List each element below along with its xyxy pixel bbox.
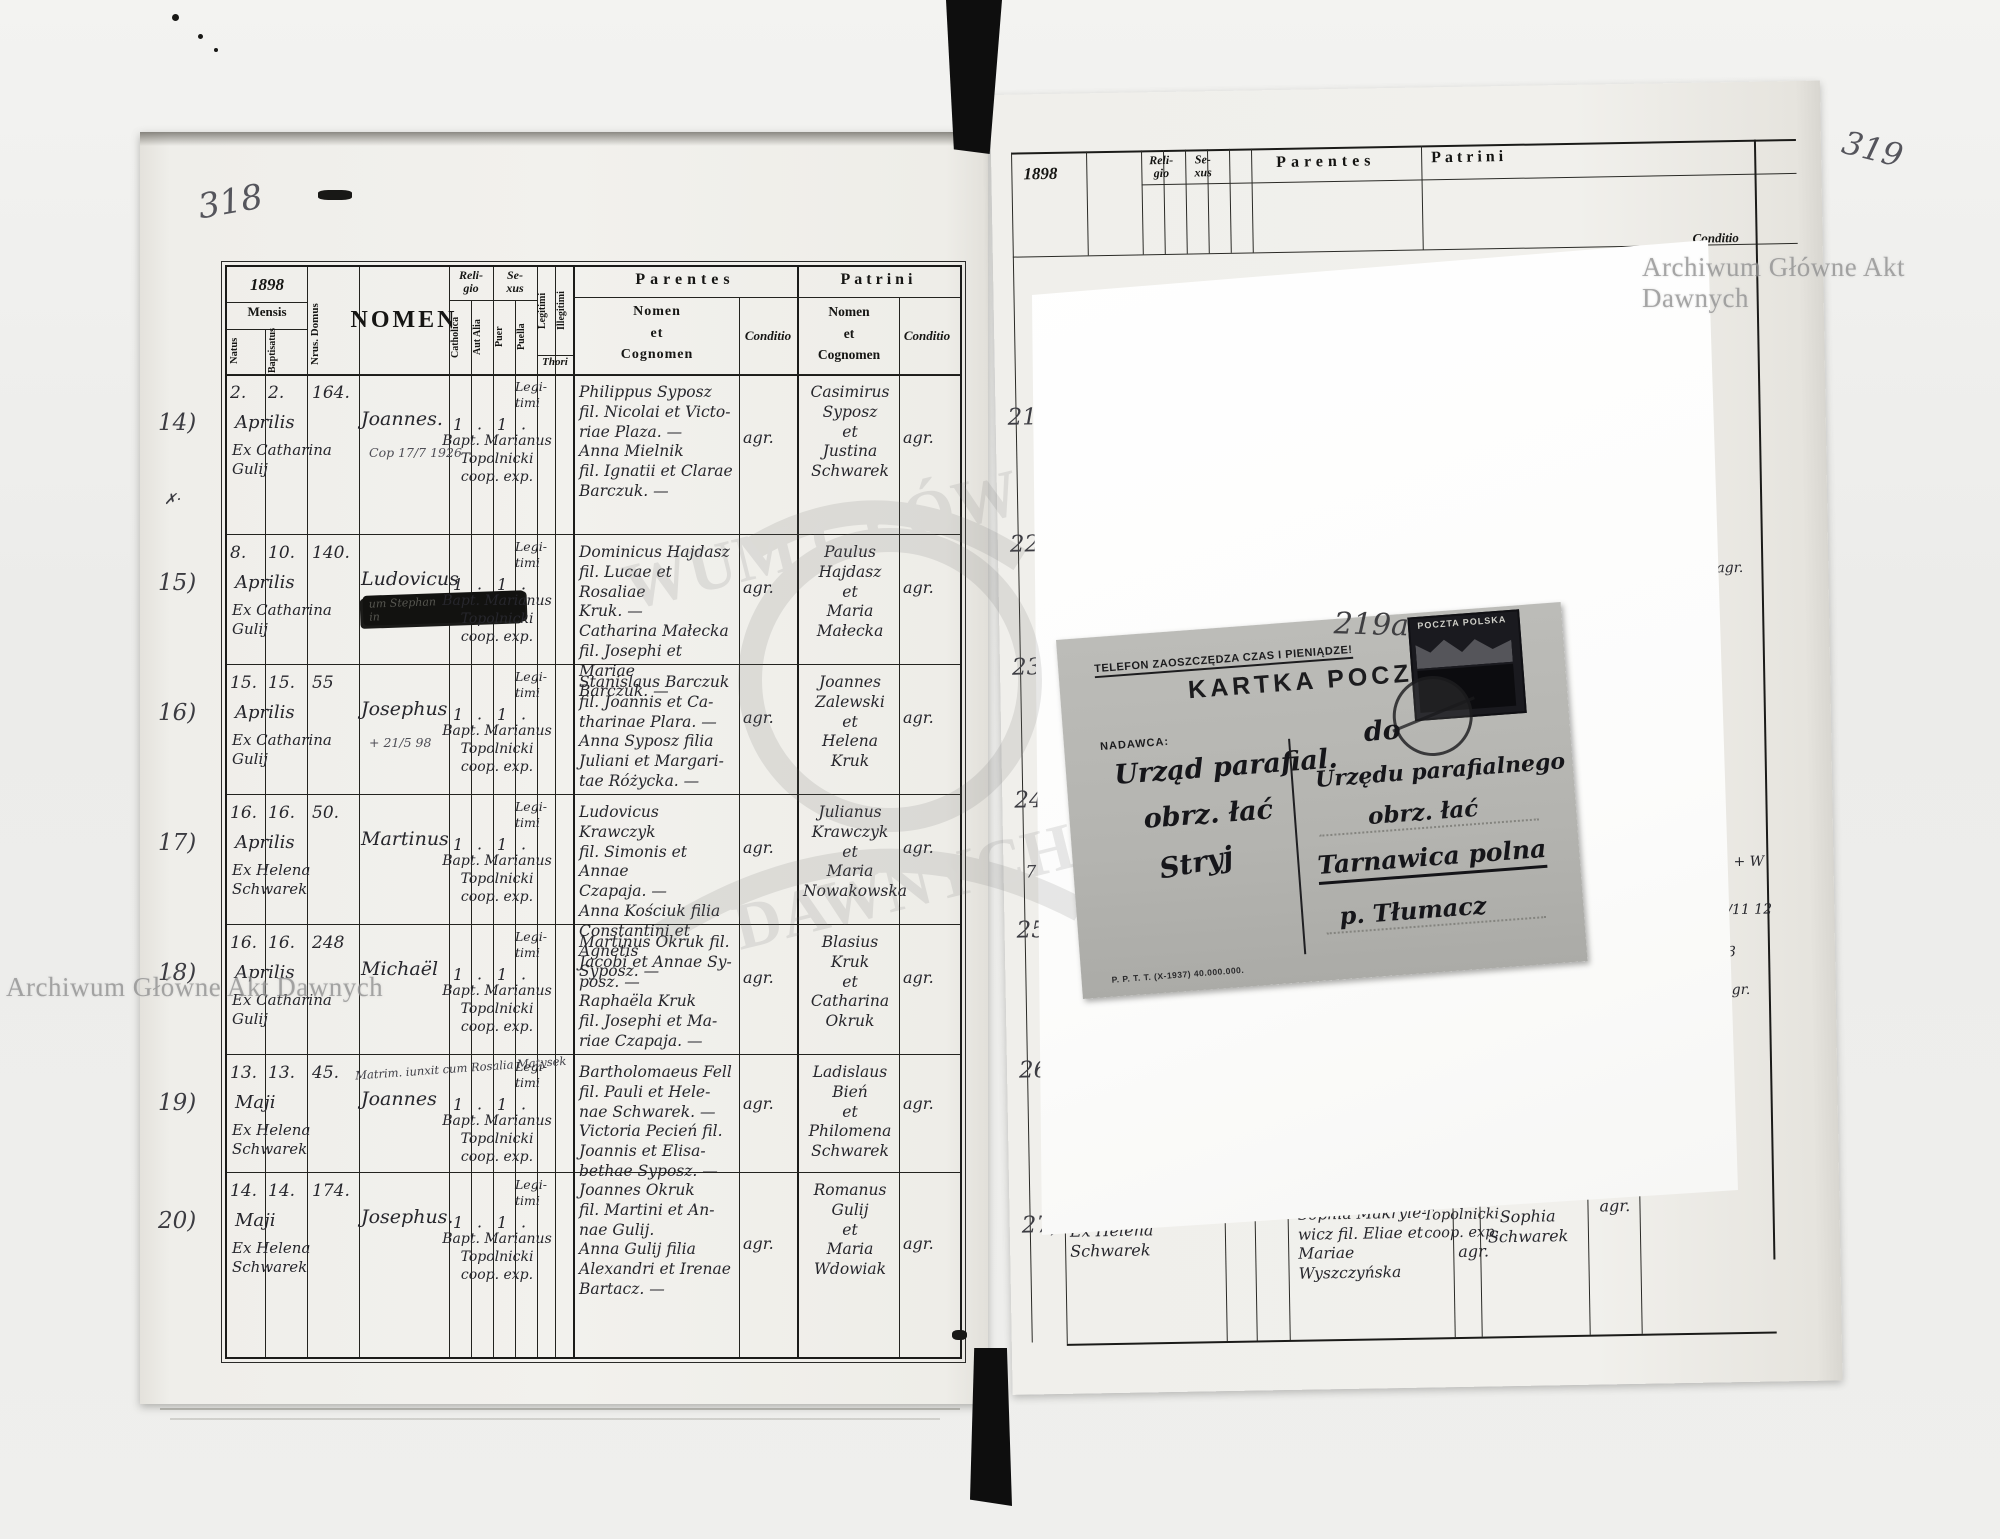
legitimacy: Legi- timi xyxy=(515,799,563,831)
parentes-header: Parentes xyxy=(1276,152,1376,172)
patrini-condition: agr. xyxy=(903,578,953,598)
natus-day: 2. xyxy=(230,383,264,405)
page-stack-edge xyxy=(160,1408,960,1410)
edge-note-fragments: agr.+ W2/11 123gr. xyxy=(990,81,1820,95)
mother-note: Ex Catharina Gulij xyxy=(232,601,358,639)
patrini-names: Ladislaus Bień et Philomena Schwarek xyxy=(803,1063,897,1162)
edge-note-fragment: + W xyxy=(1733,854,1764,872)
patrini-header: Patrini xyxy=(1431,148,1507,167)
parents-condition: agr. xyxy=(743,1094,793,1114)
mother-note: Ex Helena Schwarek xyxy=(232,1121,358,1159)
house-number: 55 xyxy=(312,673,357,695)
margin-row-number: 19) xyxy=(158,1090,196,1116)
mother-note: Ex Catharina Gulij xyxy=(232,731,358,769)
legitimacy: Legi- timi xyxy=(515,929,563,961)
legitimacy: Legi- timi xyxy=(515,539,563,571)
puer-label: Puer xyxy=(494,302,514,372)
patrini-names: Casimirus Syposz et Justina Schwarek xyxy=(803,383,897,482)
header-line xyxy=(573,297,960,298)
parents-condition: agr. xyxy=(743,1234,793,1254)
ink-speck xyxy=(214,48,218,52)
parentes-conditio-header: Conditio xyxy=(739,299,797,372)
aut-alia-label: Aut Alia xyxy=(472,302,492,372)
mensis-label: Mensis xyxy=(229,304,305,320)
book-gutter-shadow-bottom xyxy=(970,1348,1012,1506)
catholica-label: Catholica xyxy=(450,302,470,372)
margin-row-number: 15) xyxy=(158,570,196,596)
column-line xyxy=(1229,149,1232,253)
parents-names: Bartholomaeus Fell fil. Pauli et Hele- n… xyxy=(579,1063,737,1182)
column-line xyxy=(1185,150,1188,254)
house-number: 174. xyxy=(312,1181,357,1203)
patrini-name-header: Nomen et Cognomen xyxy=(799,301,899,366)
parents-names: Philippus Syposz fil. Nicolai et Victo- … xyxy=(579,383,737,502)
patrini-condition: agr. xyxy=(903,1234,953,1254)
register-row: 15.15.55AprilisEx Catharina GulijJosephu… xyxy=(227,664,960,795)
header-line xyxy=(227,302,307,303)
patrini-header: Patrini xyxy=(799,271,958,289)
patrini-condition: agr. xyxy=(903,708,953,728)
parents-condition: agr. xyxy=(743,708,793,728)
ink-speck xyxy=(952,1330,967,1340)
column-line xyxy=(1251,148,1254,252)
mother-note: Ex Catharina Gulij xyxy=(232,441,358,479)
year-label: 1898 xyxy=(229,269,305,300)
natus-day: 16. xyxy=(230,803,264,825)
column-line xyxy=(1421,145,1424,249)
margin-row-number: 14) xyxy=(158,410,196,436)
column-line xyxy=(1086,151,1089,255)
sender-line-3: Stryj xyxy=(1157,840,1236,886)
parents-condition: agr. xyxy=(743,578,793,598)
parents-condition: agr. xyxy=(743,838,793,858)
addressee-place: Tarnawica polna xyxy=(1317,834,1548,885)
margin-row-number: 17) xyxy=(158,830,196,856)
puella-label: Puella xyxy=(516,302,536,372)
patrini-names: Blasius Kruk et Catharina Okruk xyxy=(803,933,897,1032)
legitimacy: Legi- timi xyxy=(515,669,563,701)
parents-condition: agr. xyxy=(743,968,793,988)
birth-month: Maji xyxy=(235,1209,345,1232)
parentes-header: Parentes xyxy=(575,271,795,289)
addressee-intro: do xyxy=(1363,714,1402,748)
child-name: Joannes. xyxy=(361,407,453,431)
parents-names: Joannes Okruk fil. Martini et An- nae Gu… xyxy=(579,1181,737,1300)
birth-month: Maji xyxy=(235,1091,345,1114)
house-number: 140. xyxy=(312,543,357,565)
parents-condition: agr. xyxy=(1458,1241,1489,1262)
religio-header: Reli- gio xyxy=(1149,154,1173,181)
margin-extra-mark: 7 xyxy=(1025,862,1036,882)
legitimacy: Legi- timi xyxy=(515,1059,563,1091)
patrini-names: Julianus Krawczyk et Maria Nowakowska xyxy=(803,803,897,902)
register-row: 16.16.50.AprilisEx Helena SchwarekMartin… xyxy=(227,794,960,925)
ink-speck xyxy=(172,14,179,21)
natus-day: 16. xyxy=(230,933,264,955)
house-number: 50. xyxy=(312,803,357,825)
pencil-number: 219a xyxy=(1333,605,1409,646)
birth-month: Aprilis xyxy=(235,701,345,724)
baptizer: Bapt. Marianus Topolnicki coop. exp. xyxy=(431,983,563,1037)
legitimacy: Legi- timi xyxy=(515,1177,563,1209)
birth-month: Aprilis xyxy=(235,571,345,594)
register-left-page: 318 14)15)16)17)18)19)20)✗· 1898MensisNa… xyxy=(140,132,988,1404)
table-frame-line xyxy=(1011,153,1033,1343)
natus-day: 14. xyxy=(230,1181,264,1203)
natus-day: 15. xyxy=(230,673,264,695)
child-name: Josephus xyxy=(361,697,453,721)
archive-watermark-top-right: Archiwum Główne Akt Dawnych xyxy=(1642,252,2000,314)
patrini-names: Romanus Gulij et Maria Wdowiak xyxy=(803,1181,897,1280)
baptizer: Bapt. Marianus Topolnicki coop. exp. xyxy=(431,853,563,907)
register-row: 8.10.140.AprilisEx Catharina GulijLudovi… xyxy=(227,534,960,665)
patrini-condition: agr. xyxy=(903,1094,953,1114)
printer-imprint: P. P. T. T. (X-1937) 40.000.000. xyxy=(1111,965,1244,985)
natus-day: 13. xyxy=(230,1063,264,1085)
baptism-day: 14. xyxy=(268,1181,306,1203)
parents-condition: agr. xyxy=(743,428,793,448)
baptizer: Bapt. Marianus Topolnicki coop. exp. xyxy=(431,1231,563,1285)
birth-month: Aprilis xyxy=(235,411,345,434)
header-line xyxy=(449,300,537,301)
baptism-day: 16. xyxy=(268,933,306,955)
sender-line-2: obrz. łać xyxy=(1143,794,1275,835)
religio-header: Reli- gio xyxy=(450,269,492,295)
addressee-post-office: p. Tłumacz xyxy=(1338,891,1487,931)
register-row: 13.13.45.MajiEx Helena SchwarekJoannesMa… xyxy=(227,1054,960,1173)
mother-note: Ex Helena Schwarek xyxy=(232,861,358,899)
house-number: 45. xyxy=(312,1063,357,1085)
ink-speck xyxy=(198,34,203,39)
margin-row-number: 20) xyxy=(158,1208,196,1234)
parents-names: Martinus Okruk fil. Jacobi et Annae Sy- … xyxy=(579,933,737,1052)
archive-watermark-bottom-left: Archiwum Główne Akt Dawnych xyxy=(6,972,383,1003)
patrini-names: Paulus Hajdasz et Maria Małecka xyxy=(803,543,897,642)
stamp-country: POCZTA POLSKA xyxy=(1410,614,1514,632)
patrini-condition: agr. xyxy=(903,968,953,988)
register-row: 14.14.174.MajiEx Helena SchwarekJosephus… xyxy=(227,1172,960,1358)
natus-day: 8. xyxy=(230,543,264,565)
house-number: 164. xyxy=(312,383,357,405)
margin-row-numbers: 21)22)23)24)25)26)27)7 xyxy=(990,81,1820,95)
parents-names: Stanislaus Barczuk fil. Joannis et Ca- t… xyxy=(579,673,737,792)
baptism-day: 10. xyxy=(268,543,306,565)
margin-row-number: 16) xyxy=(158,700,196,726)
stamp-landscape xyxy=(1415,628,1513,669)
thori-label: Thori xyxy=(537,356,573,368)
page-number-left: 318 xyxy=(195,177,266,228)
legitimacy: Legi- timi xyxy=(515,379,563,411)
baptism-day: 13. xyxy=(268,1063,306,1085)
birth-month: Aprilis xyxy=(235,831,345,854)
column-line xyxy=(1141,150,1144,254)
patrini-condition: agr. xyxy=(1599,1196,1630,1217)
table-frame-line xyxy=(1011,139,1796,155)
margin-check-mark: ✗· xyxy=(164,490,181,508)
baptizer: Bapt. Marianus Topolnicki coop. exp. xyxy=(431,723,563,777)
sexus-header: Se- xus xyxy=(1194,153,1212,180)
page-number-right: 319 xyxy=(1838,123,1906,175)
house-number: 248 xyxy=(312,933,357,955)
page-stack-edge xyxy=(170,1418,940,1420)
sender-label: NADAWCA: xyxy=(1100,736,1170,753)
mother-note: Ex Helena Schwarek xyxy=(232,1239,358,1277)
child-name: Josephus. xyxy=(361,1205,453,1229)
year-label: 1898 xyxy=(1023,164,1057,185)
patrini-condition: agr. xyxy=(903,838,953,858)
child-name: Martinus xyxy=(361,827,453,851)
baptism-day: 2. xyxy=(268,383,306,405)
legitimi-label: Legitimi xyxy=(537,269,554,353)
header-sub-line xyxy=(1142,173,1797,185)
baptizer: Bapt. Marianus Topolnicki coop. exp. xyxy=(431,433,563,487)
baptism-day: 15. xyxy=(268,673,306,695)
illegitimi-label: Illegitimi xyxy=(556,269,572,353)
baptizer: Bapt. Marianus Topolnicki coop. exp. xyxy=(431,593,563,647)
baptism-day: 16. xyxy=(268,803,306,825)
edge-note-fragment: gr. xyxy=(1732,982,1751,1000)
ink-blot xyxy=(318,190,352,200)
sender-line-1: Urząd parafial. xyxy=(1113,743,1338,791)
patrini-names: Joannes Zalewski et Helena Kruk xyxy=(803,673,897,772)
nomen-label: NOMEN xyxy=(359,269,449,372)
edge-note-fragment: agr. xyxy=(1716,560,1743,578)
table-bottom-line xyxy=(1067,1331,1777,1345)
archive-scan-photo: 318 14)15)16)17)18)19)20)✗· 1898MensisNa… xyxy=(0,0,2000,1539)
register-table: 1898MensisNatusBaptisatusNrus. DomusNOME… xyxy=(225,265,962,1359)
child-name: Ludovicus xyxy=(361,567,453,591)
natus-label: Natus xyxy=(229,329,263,373)
child-name: Joannes xyxy=(361,1087,453,1111)
register-row: 2.2.164.AprilisEx Catharina GulijJoannes… xyxy=(227,374,960,535)
postcard: TELEFON ZAOSZCZĘDZA CZAS I PIENIĄDZE! KA… xyxy=(1056,602,1588,999)
patrini-conditio-header: Conditio xyxy=(899,299,955,372)
sexus-header: Se- xus xyxy=(494,269,536,295)
patrini-condition: agr. xyxy=(903,428,953,448)
baptizer: Bapt. Marianus Topolnicki coop. exp. xyxy=(431,1113,563,1167)
parentes-name-header: Nomen et Cognomen xyxy=(575,301,739,366)
baptisatus-label: Baptisatus xyxy=(267,329,305,373)
